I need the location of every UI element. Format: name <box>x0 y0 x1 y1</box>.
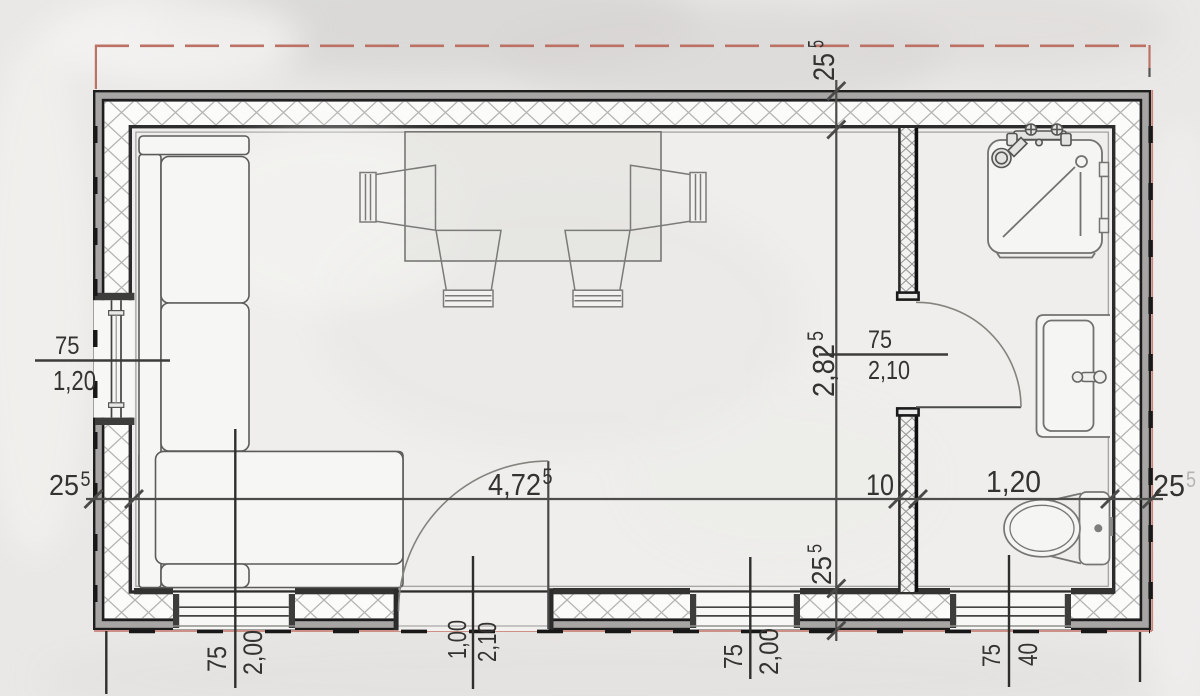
svg-text:2,10: 2,10 <box>472 622 502 662</box>
svg-text:2,00: 2,00 <box>238 630 268 675</box>
svg-text:75: 75 <box>718 644 748 669</box>
svg-text:25: 25 <box>808 53 841 81</box>
svg-text:5: 5 <box>543 464 553 489</box>
svg-text:75: 75 <box>55 332 80 360</box>
svg-text:4,72: 4,72 <box>488 467 541 502</box>
svg-text:5: 5 <box>803 331 828 341</box>
svg-text:75: 75 <box>868 326 892 354</box>
svg-text:5: 5 <box>1186 467 1196 492</box>
svg-text:2,82: 2,82 <box>806 344 841 397</box>
svg-text:40: 40 <box>1013 643 1043 666</box>
svg-text:10: 10 <box>866 469 894 502</box>
svg-text:75: 75 <box>978 644 1006 667</box>
svg-text:2,10: 2,10 <box>868 355 910 385</box>
svg-text:5: 5 <box>804 40 829 48</box>
svg-text:1,20: 1,20 <box>986 464 1041 499</box>
svg-text:1,00: 1,00 <box>442 620 472 659</box>
svg-text:5: 5 <box>81 468 91 491</box>
svg-text:2,00: 2,00 <box>754 628 784 675</box>
svg-text:25: 25 <box>49 470 79 502</box>
svg-text:25: 25 <box>1153 468 1185 503</box>
svg-text:25: 25 <box>806 556 837 585</box>
svg-text:5: 5 <box>805 544 827 553</box>
svg-text:1,20: 1,20 <box>53 365 96 396</box>
svg-text:75: 75 <box>202 646 232 672</box>
